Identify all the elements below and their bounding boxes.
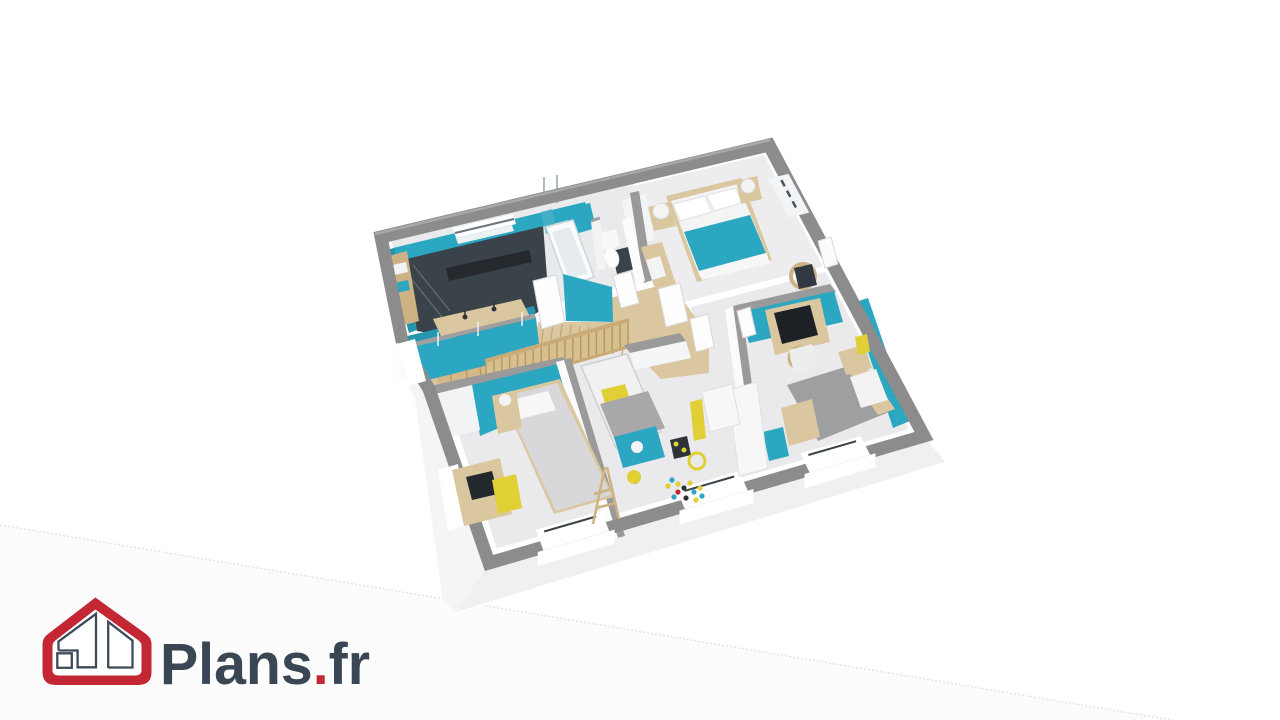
svg-text:Plans.fr: Plans.fr: [160, 632, 370, 697]
